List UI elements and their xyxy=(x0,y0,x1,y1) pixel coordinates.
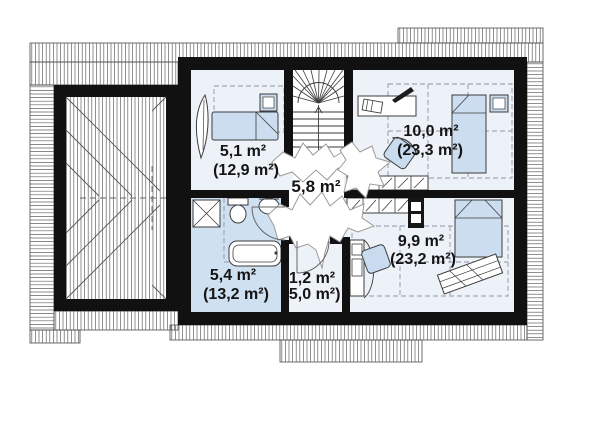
wall xyxy=(344,70,353,150)
floor-plan-canvas: 5,1 m² (12,9 m²) 5,8 m² 10,0 m² (23,3 m²… xyxy=(0,0,600,437)
toilet xyxy=(228,198,248,205)
hallway-area: 5,8 m² xyxy=(291,177,340,196)
wall xyxy=(514,57,527,325)
bedroom-left-area: 5,1 m² xyxy=(220,143,266,160)
garage-roof xyxy=(30,62,178,330)
bedroom-top-right-area: 10,0 m² xyxy=(403,123,458,140)
toilet xyxy=(230,205,246,223)
winder-tread xyxy=(319,70,320,103)
bed xyxy=(212,112,278,140)
hip-line xyxy=(66,163,99,196)
wall xyxy=(344,190,514,198)
floor-plan: 5,1 m² (12,9 m²) 5,8 m² 10,0 m² (23,3 m²… xyxy=(0,0,600,437)
bedroom-left-area-total: (12,9 m²) xyxy=(213,162,279,179)
faucet xyxy=(274,251,277,254)
bedroom-bottom-right-area-total: (23,2 m²) xyxy=(390,251,456,268)
closet-area: 1,2 m² xyxy=(289,270,335,287)
wall xyxy=(178,190,289,198)
wall xyxy=(178,312,527,325)
hip-line xyxy=(66,200,99,233)
wall xyxy=(342,237,350,312)
closet-area-total: (5,0 m²) xyxy=(284,286,341,303)
bed xyxy=(455,200,502,257)
bathroom-area: 5,4 m² xyxy=(210,267,256,284)
bedroom-top-right-area-total: (23,3 m²) xyxy=(397,142,463,159)
wall xyxy=(178,57,527,70)
wall xyxy=(284,70,293,160)
bathroom-area-total: (13,2 m²) xyxy=(203,286,269,303)
bedroom-bottom-right-area: 9,9 m² xyxy=(398,233,444,250)
